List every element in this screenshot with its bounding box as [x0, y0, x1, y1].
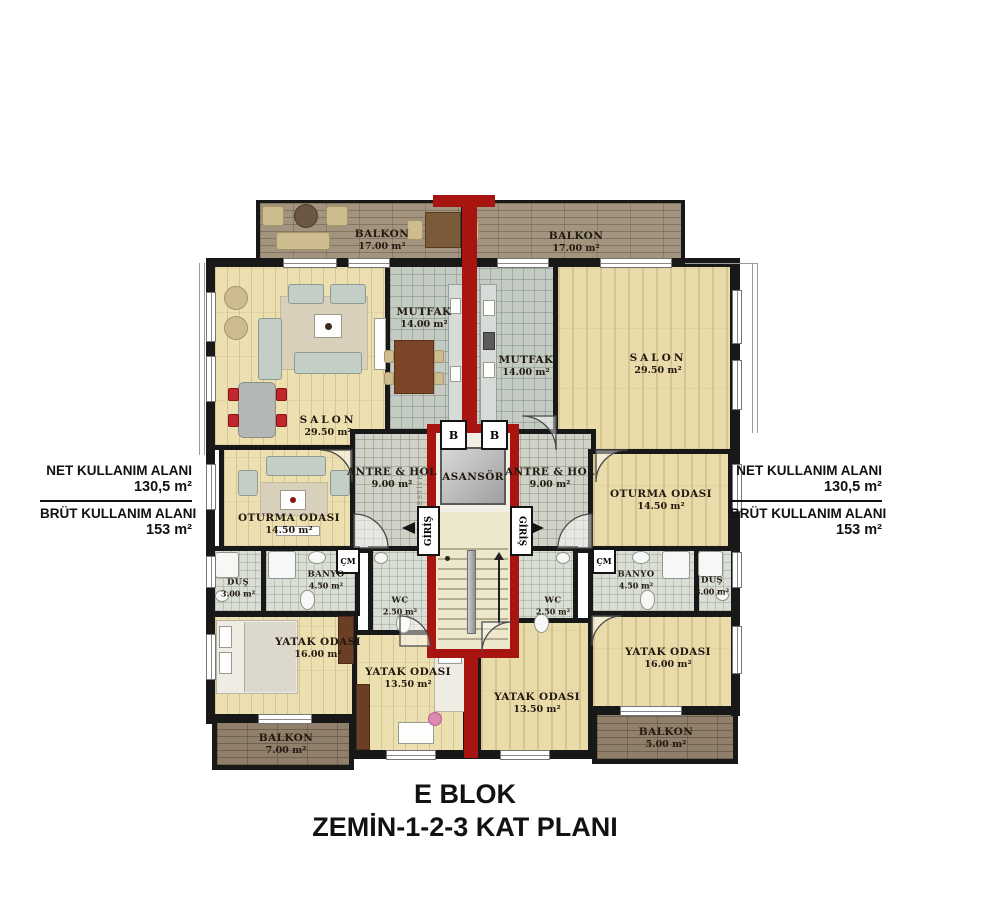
sink [374, 552, 388, 564]
dining-chair-red [228, 414, 239, 427]
kitchen-chair [384, 372, 394, 385]
sitting-sofa [266, 456, 326, 476]
label-bedroom-left-13: YATAK ODASI 13.50 m² [365, 666, 451, 690]
shaft-b-label: B [449, 429, 458, 442]
label-bedroom-right-13: YATAK ODASI 13.50 m² [494, 691, 580, 715]
brut-area-label: BRÜT KULLANIM ALANI [730, 505, 882, 522]
salon-decor-dot [325, 323, 332, 330]
window [206, 634, 216, 680]
stair-arrow-head-icon [494, 552, 504, 560]
kitchen-sink [450, 298, 461, 314]
window [206, 292, 216, 342]
window [732, 360, 742, 410]
net-area-value: 130,5 m² [40, 479, 192, 502]
balcony-round-table [294, 204, 318, 228]
balcony-dining-table [425, 212, 461, 248]
window [283, 258, 337, 268]
label-sitting-left: OTURMA ODASI 14.50 m² [238, 512, 340, 536]
label-bedroom-left-16: YATAK ODASI 16.00 m² [275, 636, 361, 660]
axis-red-bar-bottom [464, 648, 478, 758]
label-bath-left: BANYO 4.50 m² [307, 570, 344, 591]
label-salon-right: SALON 29.50 m² [630, 352, 687, 376]
entry-arrow-right-icon [531, 522, 544, 534]
salon-sofa [258, 318, 282, 380]
exterior-wall-step-right [588, 710, 597, 758]
window [206, 356, 216, 402]
label-salon-left: SALON 29.50 m² [300, 414, 357, 438]
balcony-chair [262, 206, 284, 226]
window [732, 552, 742, 588]
shower-tray [268, 551, 296, 579]
window [258, 714, 312, 724]
salon-armchair [288, 284, 324, 304]
toilet [396, 614, 411, 633]
net-area-value: 130,5 m² [730, 479, 882, 502]
desk [398, 722, 434, 744]
plan-title-floor: ZEMİN-1-2-3 KAT PLANI [312, 811, 618, 844]
area-info-right: NET KULLANIM ALANI 130,5 m² BRÜT KULLANI… [730, 462, 882, 543]
wardrobe [356, 684, 370, 750]
net-area-label: NET KULLANIM ALANI [730, 462, 882, 479]
label-balcony-top-left: BALKON 17.00 m² [355, 228, 409, 252]
entry-giris-text: GİRİŞ [517, 516, 527, 546]
sink [308, 551, 326, 564]
dining-chair-red [276, 388, 287, 401]
label-balcony-bottom-right: BALKON 5.00 m² [639, 726, 693, 750]
shower-tray [662, 551, 690, 579]
label-balcony-bottom-left: BALKON 7.00 m² [259, 732, 313, 756]
dining-chair-red [276, 414, 287, 427]
window [206, 464, 216, 510]
salon-dining-table [238, 382, 276, 438]
stair-rail [467, 550, 476, 634]
stair-arrow-line [498, 558, 500, 624]
eave-line [199, 263, 200, 455]
eave-line [204, 263, 205, 455]
salon-sofa [294, 352, 362, 374]
window [206, 556, 216, 588]
window [500, 750, 550, 760]
label-kitchen-right: MUTFAK 14.00 m² [498, 354, 553, 378]
pillow [219, 652, 232, 674]
shower-tray [215, 552, 239, 578]
window [732, 626, 742, 674]
washer-box-right: ÇM [592, 548, 616, 574]
sink [632, 551, 650, 564]
shaft-box-b-right: B [481, 420, 508, 450]
salon-rattan-chair [224, 316, 248, 340]
sitting-decor-dot [290, 497, 296, 503]
shaft-b-label: B [490, 429, 499, 442]
shaft-box-b-left: B [440, 420, 467, 450]
window [348, 258, 390, 268]
window [600, 258, 672, 268]
shower-tray [698, 551, 723, 577]
sitting-armchair [238, 470, 258, 496]
label-shower-right: DUŞ 3.00 m² [695, 576, 729, 597]
washer-cm-label: ÇM [596, 556, 611, 566]
area-info-left: NET KULLANIM ALANI 130,5 m² BRÜT KULLANI… [40, 462, 192, 543]
balcony-chair [326, 206, 348, 226]
label-bath-right: BANYO 4.50 m² [617, 570, 654, 591]
stair-start-dot [445, 556, 450, 561]
axis-red-bar-top [462, 195, 477, 446]
label-bedroom-right-16: YATAK ODASI 16.00 m² [625, 646, 711, 670]
brut-area-value: 153 m² [730, 522, 882, 543]
eave-line [752, 263, 753, 433]
window [732, 290, 742, 344]
washer-cm-label: ÇM [340, 556, 355, 566]
net-area-label: NET KULLANIM ALANI [40, 462, 192, 479]
floor-plan-canvas: B B GİRİŞ GİRİŞ ÇM ÇM VESTİYER [0, 0, 1000, 900]
window [386, 750, 436, 760]
balcony-chair [407, 220, 423, 240]
kitchen-sink [483, 362, 495, 378]
salon-armchair [330, 284, 366, 304]
kitchen-sink [483, 300, 495, 316]
desk-chair-pink [428, 712, 442, 726]
label-hall-left: ANTRE & HOL 9.00 m² [347, 466, 437, 490]
salon-rattan-chair [224, 286, 248, 310]
eave-line [685, 263, 757, 264]
label-sitting-right: OTURMA ODASI 14.50 m² [610, 488, 712, 512]
kitchen-stove [483, 332, 495, 350]
label-kitchen-left: MUTFAK 14.00 m² [396, 306, 451, 330]
pillow [219, 626, 232, 648]
label-wc-right: WC 2.50 m² [536, 596, 570, 617]
entry-label-right: GİRİŞ [510, 506, 533, 556]
entry-arrow-left-icon [402, 522, 415, 534]
toilet [534, 614, 549, 633]
kitchen-table [394, 340, 434, 394]
toilet [640, 590, 655, 610]
label-wc-left: WC 2.50 m² [383, 596, 417, 617]
toilet [300, 590, 315, 610]
window [620, 706, 682, 716]
plan-title: E BLOK ZEMİN-1-2-3 KAT PLANI [312, 778, 618, 844]
window [497, 258, 549, 268]
kitchen-chair [384, 350, 394, 363]
brut-area-value: 153 m² [40, 522, 192, 543]
kitchen-sink [450, 366, 461, 382]
sink [556, 552, 570, 564]
balcony-sofa [276, 232, 330, 250]
plan-title-block: E BLOK [312, 778, 618, 811]
entry-giris-text: GİRİŞ [424, 516, 434, 546]
label-shower-left: DUŞ 3.00 m² [221, 578, 255, 599]
label-elevator: ASANSÖR [442, 471, 504, 483]
brut-area-label: BRÜT KULLANIM ALANI [40, 505, 192, 522]
kitchen-chair [434, 350, 444, 363]
eave-line [757, 263, 758, 433]
label-balcony-top-right: BALKON 17.00 m² [549, 230, 603, 254]
entry-label-left: GİRİŞ [417, 506, 440, 556]
kitchen-chair [434, 372, 444, 385]
label-hall-right: ANTRE & HOL 9.00 m² [505, 466, 595, 490]
dining-chair-red [228, 388, 239, 401]
